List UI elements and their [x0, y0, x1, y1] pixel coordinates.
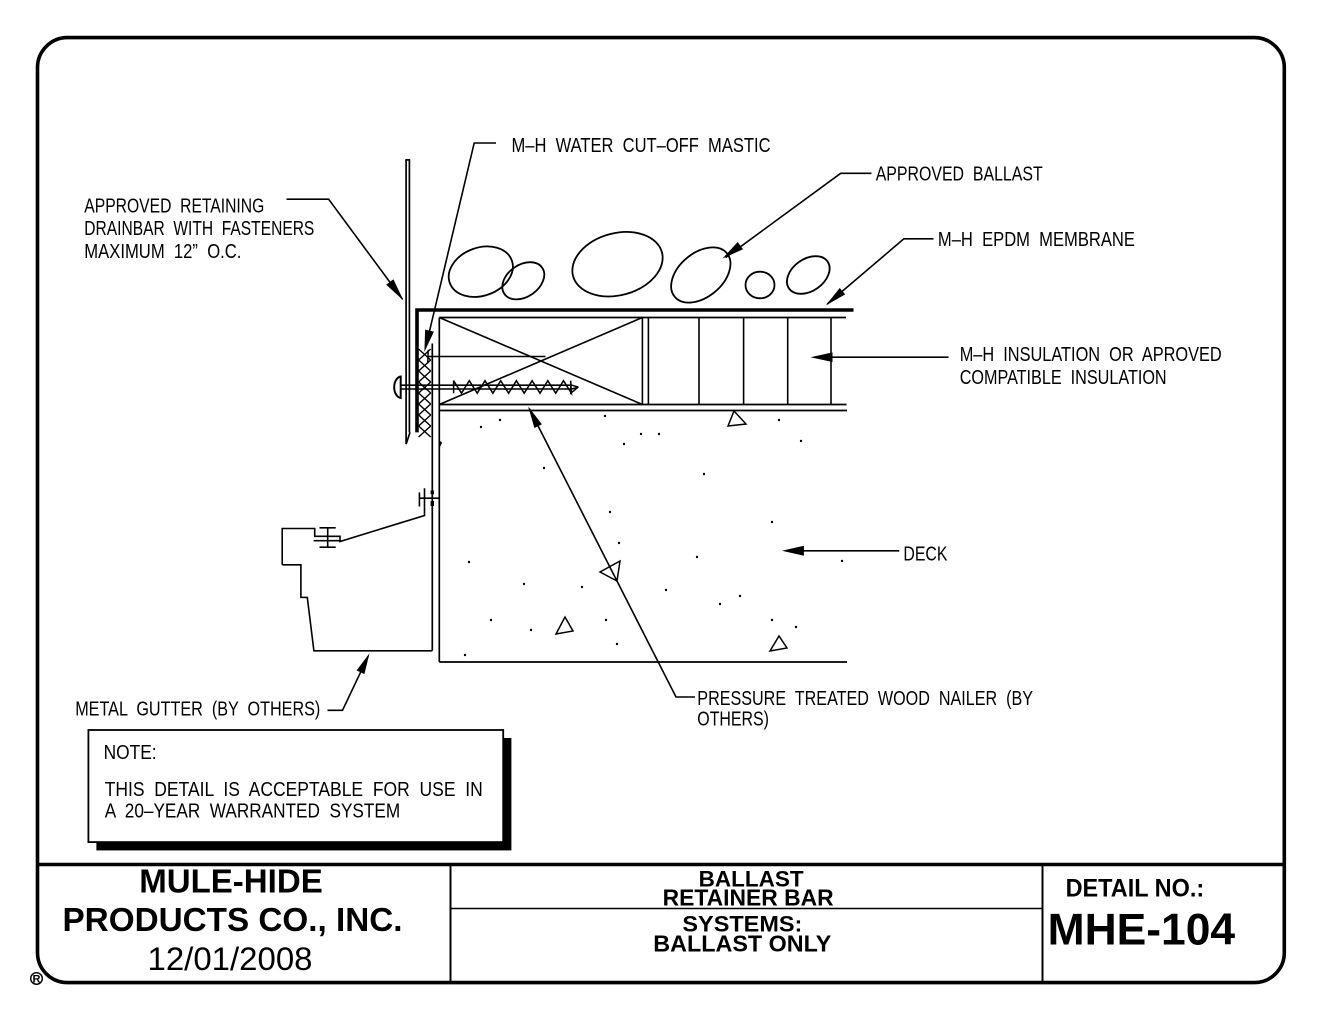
svg-text:MHE-104: MHE-104: [1048, 905, 1236, 954]
svg-text:DETAIL NO.:: DETAIL NO.:: [1066, 875, 1205, 903]
svg-text:BALLAST ONLY: BALLAST ONLY: [653, 930, 831, 956]
svg-text:M–H WATER CUT–OFF MASTIC: M–H WATER CUT–OFF MASTIC: [512, 133, 771, 156]
svg-text:M–H EPDM MEMBRANE: M–H EPDM MEMBRANE: [938, 227, 1135, 250]
svg-text:12/01/2008: 12/01/2008: [148, 940, 313, 977]
svg-text:METAL GUTTER (BY OTHERS): METAL GUTTER (BY OTHERS): [75, 696, 320, 719]
svg-text:PRODUCTS CO., INC.: PRODUCTS CO., INC.: [63, 902, 403, 939]
svg-text:MULE-HIDE: MULE-HIDE: [139, 863, 323, 900]
svg-text:DRAINBAR WITH FASTENERS: DRAINBAR WITH FASTENERS: [84, 216, 314, 240]
svg-text:THIS DETAIL IS ACCEPTABLE: THIS DETAIL IS ACCEPTABLE FOR USE IN: [105, 779, 483, 802]
svg-text:M–H INSULATION OR APROVED: M–H INSULATION OR APROVED: [960, 342, 1222, 365]
svg-text:MAXIMUM 12” O.C.: MAXIMUM 12” O.C.: [84, 239, 241, 262]
svg-text:NOTE:: NOTE:: [104, 742, 157, 765]
svg-text:R: R: [33, 974, 41, 986]
svg-text:COMPATIBLE INSULATION: COMPATIBLE INSULATION: [960, 365, 1167, 388]
svg-text:APPROVED BALLAST: APPROVED BALLAST: [876, 162, 1043, 186]
svg-text:RETAINER BAR: RETAINER BAR: [663, 885, 835, 911]
svg-text:OTHERS): OTHERS): [697, 706, 769, 729]
svg-text:APPROVED RETAINING: APPROVED RETAINING: [84, 193, 264, 217]
svg-text:A 20–YEAR WARRANTED SYSTEM: A 20–YEAR WARRANTED SYSTEM: [105, 800, 400, 823]
svg-text:DECK: DECK: [903, 541, 948, 565]
